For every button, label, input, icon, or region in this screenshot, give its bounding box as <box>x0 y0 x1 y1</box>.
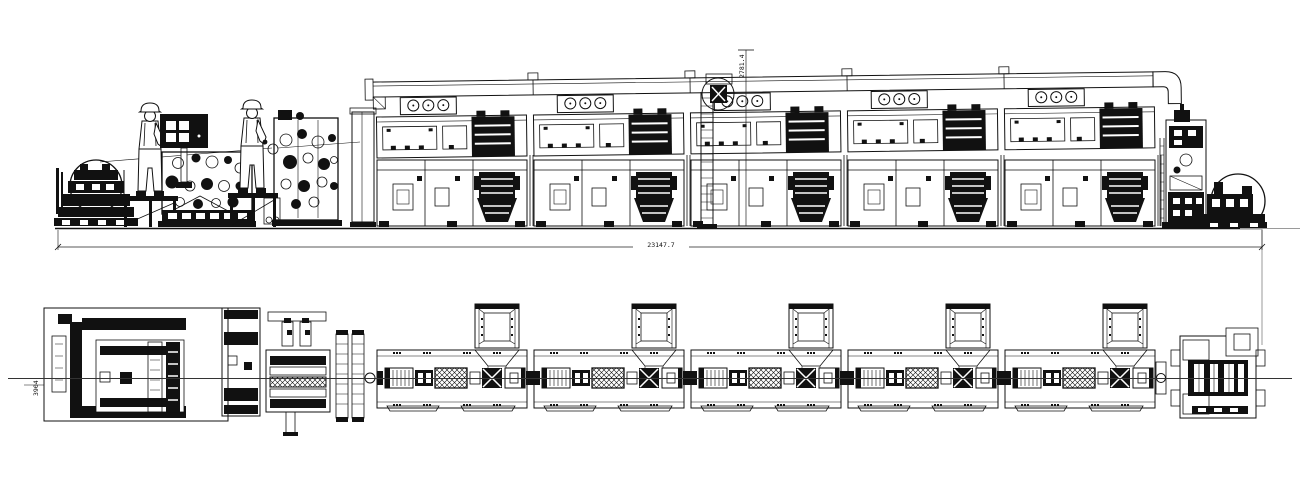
oven-module-2-lower <box>534 155 690 227</box>
length-dimension-text: 23147.7 <box>647 241 674 249</box>
oven-module-1-plan <box>377 304 527 411</box>
unwinder-plan <box>44 308 228 421</box>
oven-module-2-upper <box>533 94 684 156</box>
oven-module-4-upper <box>847 90 998 152</box>
production-line-drawing: 2781.4 23147.7 <box>0 0 1300 489</box>
control-panel <box>160 114 208 188</box>
tower-unit-elevation <box>1160 104 1210 228</box>
oven-module-4-plan <box>848 304 998 411</box>
web-entry-roller-plan <box>365 373 375 383</box>
construction-line <box>1240 229 1300 346</box>
height-dimension-text: 2781.4 <box>738 54 746 78</box>
oven-module-3-plan <box>691 304 841 411</box>
oven-upper-assembly <box>365 64 1182 158</box>
oven-module-4-lower <box>848 155 1004 227</box>
duct-elbow <box>1153 71 1181 103</box>
dimension-overall-length: 23147.7 <box>55 230 1265 250</box>
rewinder-elevation <box>1201 174 1267 228</box>
width-dimension-text: 3904 <box>32 380 40 396</box>
dimension-height: 2781.4 <box>738 50 754 226</box>
oven-module-5-plan <box>1005 304 1155 411</box>
oven-module-5-lower <box>1005 155 1161 227</box>
oven-entrance-panel <box>350 108 376 227</box>
oven-module-1-upper <box>376 96 527 158</box>
oven-module-5-upper <box>1004 88 1155 150</box>
rewinder-plan <box>1156 328 1265 418</box>
cad-drawing-sheet: 2781.4 23147.7 <box>0 0 1300 489</box>
operator-2 <box>238 100 267 193</box>
oven-line-plan <box>377 304 1155 411</box>
plan-view: 3904 <box>8 304 1292 436</box>
oven-module-3-lower <box>691 155 847 227</box>
dancer-roller <box>268 144 278 154</box>
coating-unit-plan <box>266 312 364 436</box>
elevation-view: 2781.4 23147.7 <box>54 50 1300 345</box>
hmi-screen <box>160 114 208 148</box>
oven-module-1-lower <box>377 155 533 227</box>
oven-module-2-plan <box>534 304 684 411</box>
dimension-width: 3904 <box>24 380 44 396</box>
oven-cabinets <box>377 155 1161 227</box>
